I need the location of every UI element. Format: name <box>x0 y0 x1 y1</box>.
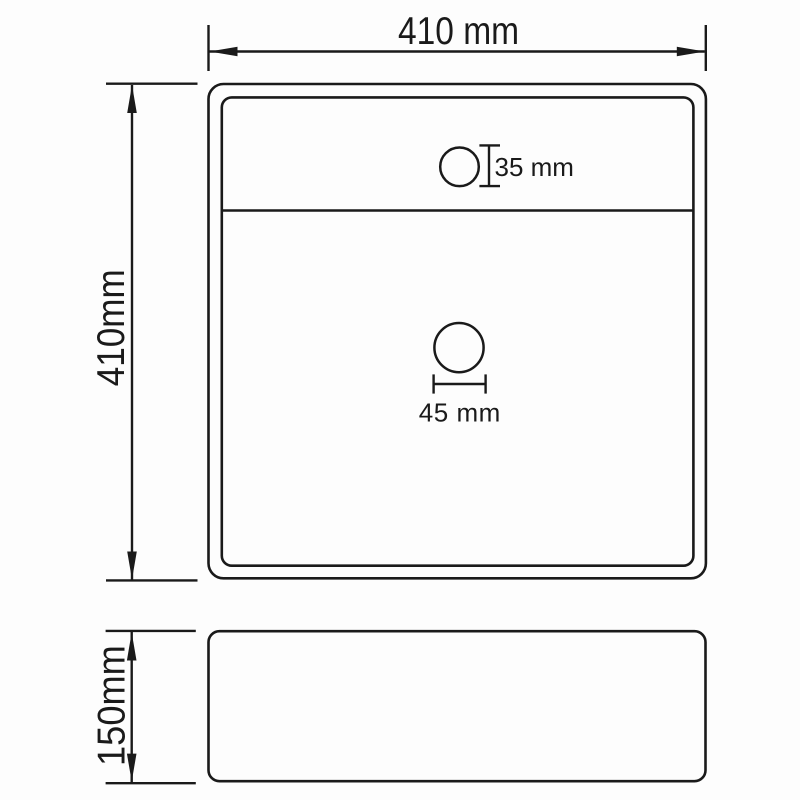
svg-text:45 mm: 45 mm <box>419 398 501 428</box>
svg-text:410 mm: 410 mm <box>398 9 519 53</box>
svg-text:410mm: 410mm <box>88 269 132 386</box>
svg-text:35 mm: 35 mm <box>495 152 574 182</box>
svg-text:150mm: 150mm <box>89 645 132 766</box>
